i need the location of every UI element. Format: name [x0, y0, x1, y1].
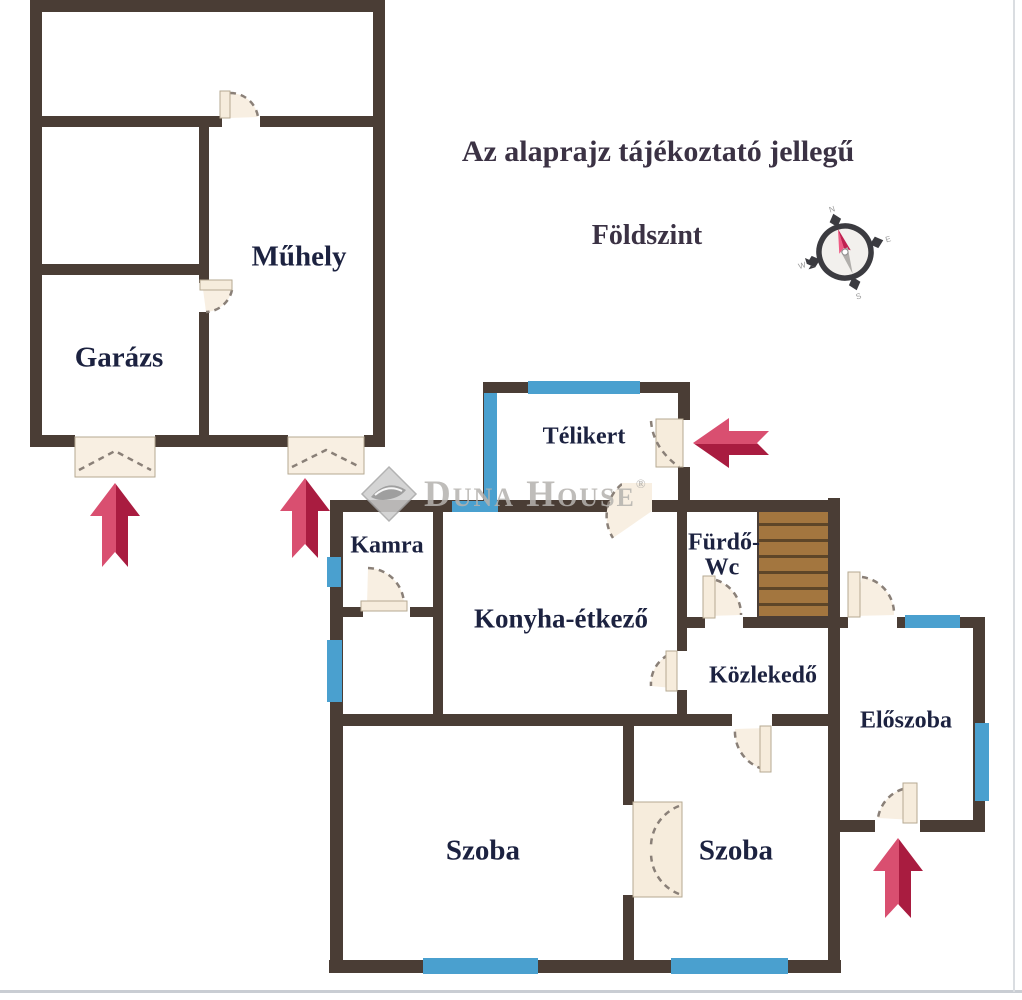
garage-door: [75, 437, 155, 477]
floor-plan: N E S W Az alaprajz tájékoztató jellegű …: [0, 0, 1022, 1000]
image-border-right: [1013, 0, 1015, 992]
room-label-szoba-left: Szoba: [446, 835, 520, 868]
compass-icon: N E S W: [795, 202, 895, 302]
room-label-eloszoba: Előszoba: [860, 708, 952, 735]
room-label-kozlekedo: Közlekedő: [709, 663, 817, 690]
room-label-muhely: Műhely: [251, 241, 346, 274]
door: [651, 651, 677, 691]
entrance-arrow-left: [693, 418, 769, 468]
room-label-garazs: Garázs: [75, 342, 164, 375]
room-label-telikert: Télikert: [543, 424, 626, 451]
svg-text:S: S: [855, 291, 863, 301]
room-label-furdo-line1: Fürdő-: [688, 530, 760, 557]
door: [703, 576, 741, 618]
door: [200, 280, 232, 312]
door: [735, 726, 771, 772]
door: [848, 572, 894, 617]
entrance-arrow-up: [280, 478, 330, 558]
svg-text:E: E: [884, 234, 892, 244]
garage-door: [288, 437, 364, 474]
image-border-bottom: [0, 990, 1022, 993]
svg-text:N: N: [828, 204, 836, 214]
door: [220, 91, 258, 118]
entrance-arrow-up: [90, 483, 140, 567]
entrance-arrow-up: [873, 838, 923, 918]
room-label-kamra: Kamra: [350, 533, 423, 560]
watermark: Duna House®: [360, 465, 648, 523]
door: [361, 568, 407, 611]
double-door: [633, 802, 682, 897]
registered-mark: ®: [636, 476, 648, 491]
duna-house-logo-icon: [360, 465, 418, 523]
plan-disclaimer-text: Az alaprajz tájékoztató jellegű: [462, 135, 854, 169]
svg-text:W: W: [797, 260, 807, 271]
door: [651, 419, 683, 467]
room-label-konyha-etkezo: Konyha-étkező: [474, 604, 648, 635]
floor-name: Földszint: [592, 220, 702, 252]
room-label-szoba-right: Szoba: [699, 835, 773, 868]
door: [878, 783, 917, 823]
room-label-furdo-line2: Wc: [705, 555, 740, 582]
watermark-brand-text: Duna House®: [424, 476, 648, 513]
